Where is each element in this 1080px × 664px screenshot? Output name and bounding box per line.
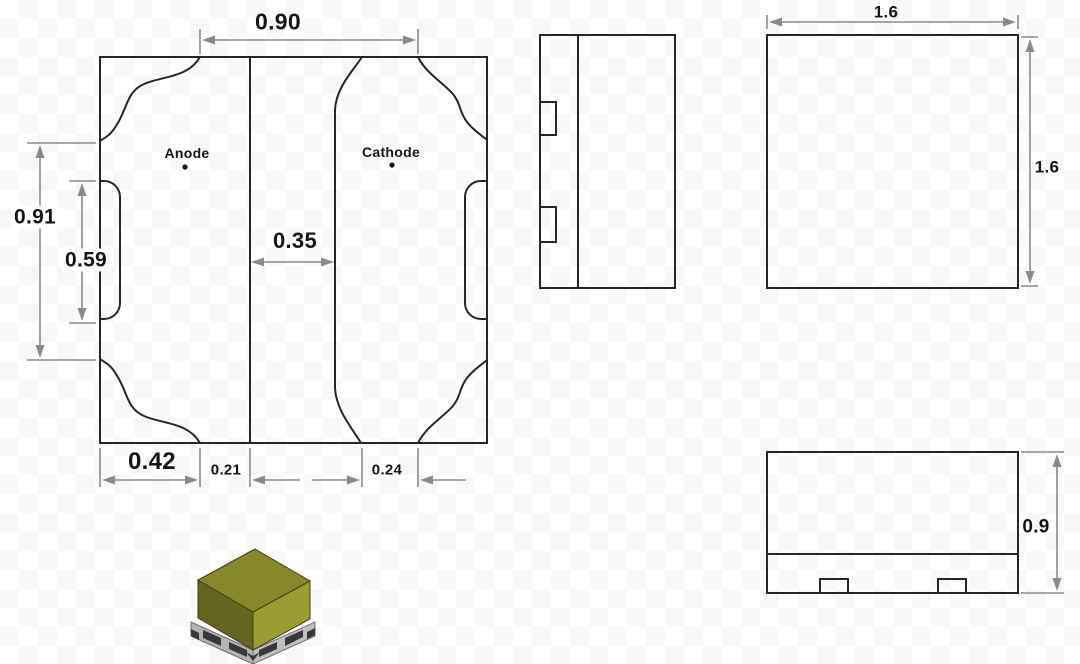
drawing-canvas: 0.90 0.91 0.59 0.35 Anode Cathode 0.42 0… [0, 0, 1080, 664]
dim-label-left-outer: 0.91 [11, 206, 59, 229]
dim-label-front-view-height: 0.9 [1022, 518, 1049, 537]
front-view-pad-left [820, 579, 848, 593]
side-view-terminal-bottom [540, 207, 556, 242]
dim-label-bottom-center: 0.21 [211, 463, 241, 478]
dim-label-bottom-right: 0.24 [372, 463, 402, 478]
technical-drawing-svg [0, 0, 1080, 664]
side-view-outline [540, 35, 675, 288]
front-view [767, 452, 1064, 593]
right-edge-notch [465, 181, 487, 319]
dim-label-top-view-width: 1.6 [874, 4, 899, 21]
top-view [767, 15, 1038, 288]
anode-label: Anode [164, 146, 209, 160]
cathode-dot [389, 162, 394, 167]
side-view [540, 35, 675, 288]
dim-pad-gap [251, 258, 334, 267]
corner-cutout-top-right [418, 57, 487, 140]
dim-top-width [200, 29, 418, 54]
cathode-label: Cathode [362, 145, 420, 159]
dim-label-bottom-left: 0.42 [128, 450, 176, 474]
dim-label-top-view-height: 1.6 [1035, 159, 1060, 176]
corner-cutout-top-left [100, 57, 200, 141]
dim-label-pad-gap: 0.35 [273, 230, 317, 252]
dim-label-top-width: 0.90 [255, 11, 301, 34]
chip-3d-render [191, 549, 315, 664]
side-view-terminal-top [540, 102, 556, 135]
cathode-pad-edge [335, 57, 362, 443]
front-view-pad-right [938, 579, 966, 593]
top-view-outline [767, 35, 1018, 288]
anode-dot [182, 164, 187, 169]
dim-label-left-inner: 0.59 [62, 249, 110, 272]
corner-cutout-bottom-left [100, 359, 200, 443]
corner-cutout-bottom-right [418, 360, 487, 443]
front-view-outline [767, 452, 1018, 593]
